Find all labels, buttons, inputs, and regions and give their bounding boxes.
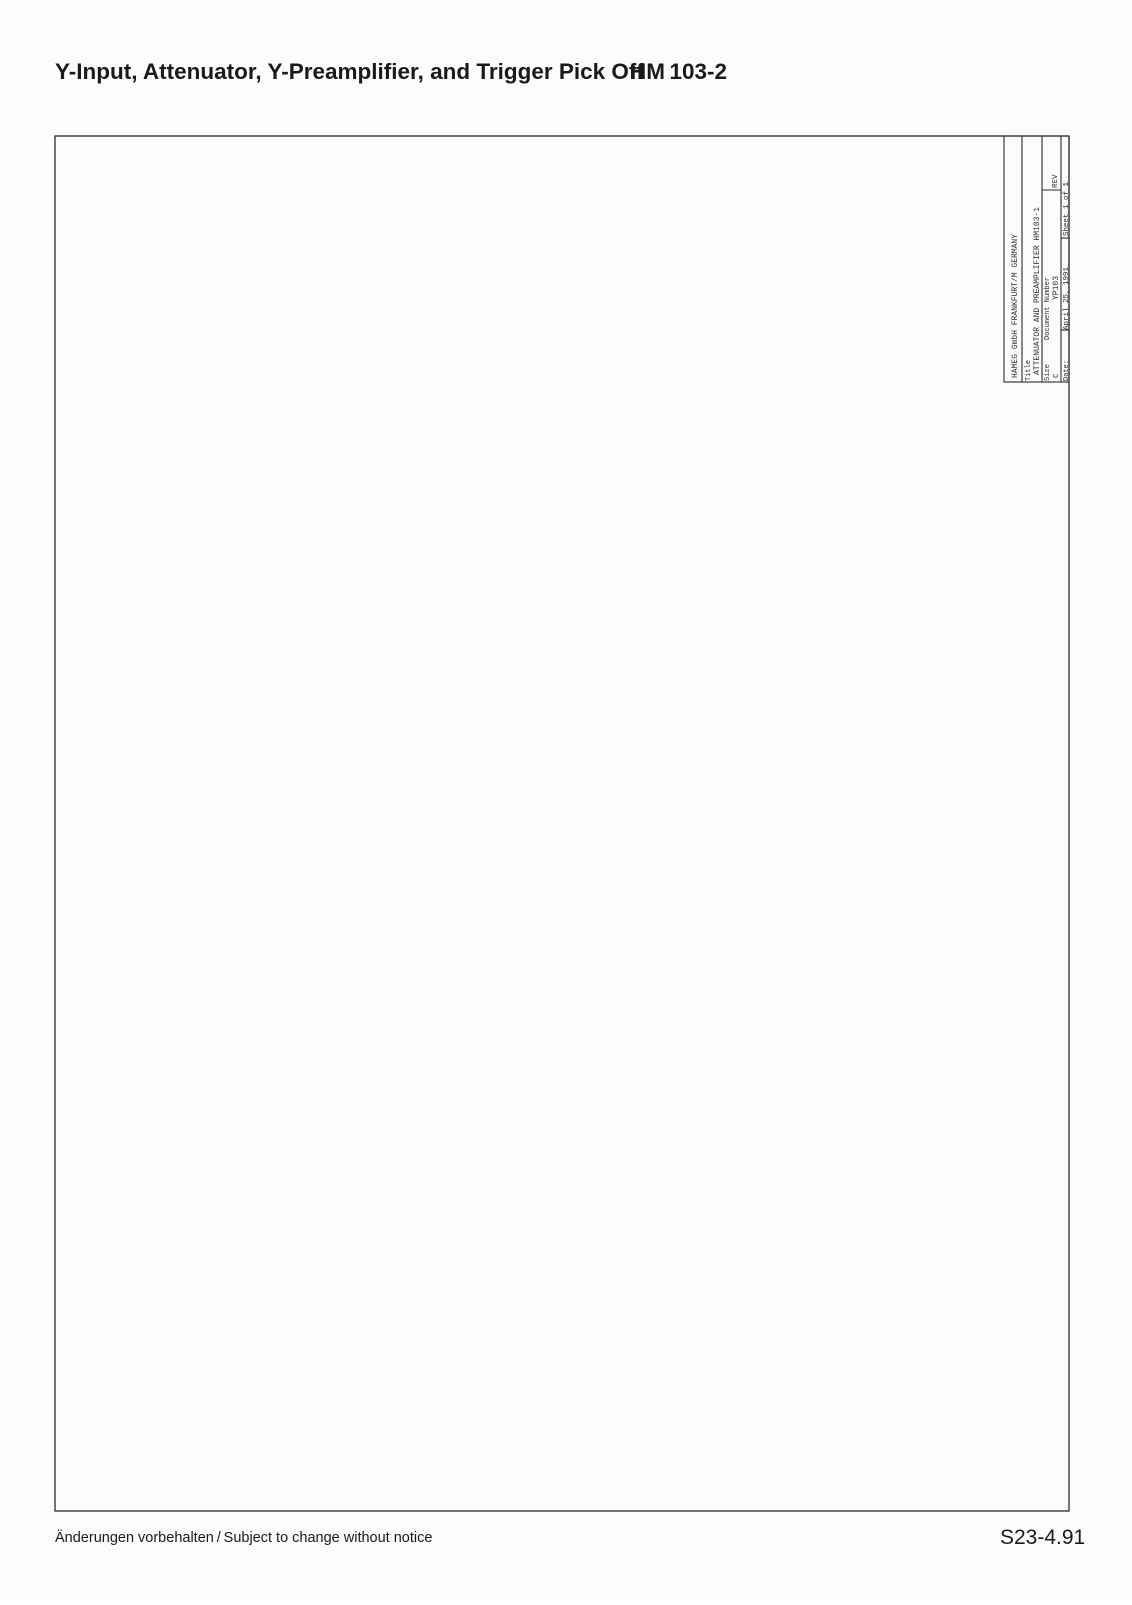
svg-text:Änderungen vorbehalten / Subje: Änderungen vorbehalten / Subject to chan…: [55, 1529, 432, 1546]
svg-text:Title: Title: [1025, 360, 1033, 381]
svg-text:S23-4.91: S23-4.91: [1000, 1526, 1085, 1549]
svg-text:ATTENUATOR AND PREAMPLIFIER HM: ATTENUATOR AND PREAMPLIFIER HM103-1: [1033, 207, 1042, 375]
svg-text:C: C: [1053, 373, 1061, 378]
svg-text:REV: REV: [1052, 174, 1060, 188]
svg-text:YP103: YP103: [1052, 276, 1061, 300]
svg-text:April 25, 1991: April 25, 1991: [1063, 266, 1071, 330]
svg-text:Document Number: Document Number: [1044, 277, 1052, 340]
svg-text:Sheet 1 of 1: Sheet 1 of 1: [1063, 181, 1071, 236]
svg-text:HAMEG GmbH FRANKFURT/M GERMA: HAMEG GmbH FRANKFURT/M GERMANY: [1011, 234, 1020, 378]
svg-text:Date:: Date:: [1063, 360, 1071, 381]
svg-text:HM 103-2: HM 103-2: [630, 59, 727, 84]
svg-text:Y-Input, Attenuator, Y-Preampl: Y-Input, Attenuator, Y-Preamplifier, and…: [55, 59, 644, 84]
svg-text:Size: Size: [1044, 364, 1052, 381]
